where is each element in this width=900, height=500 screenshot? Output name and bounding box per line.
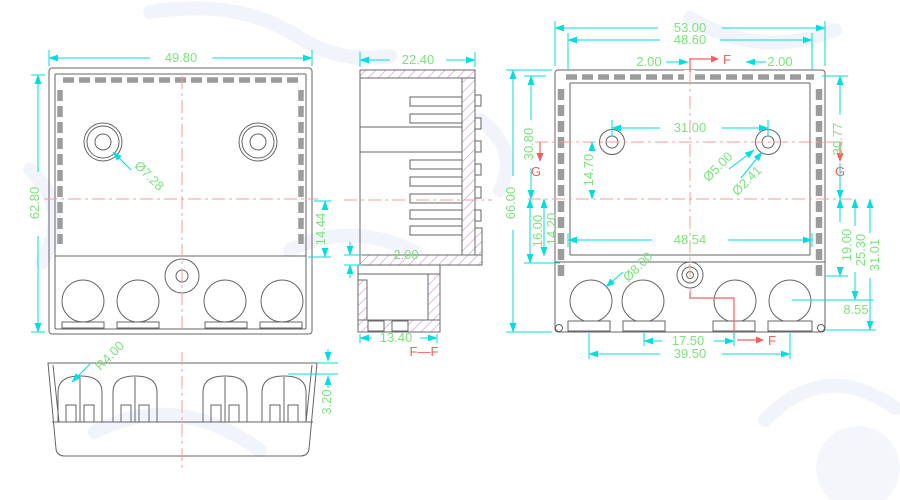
dim-back-d25: 25.30 <box>853 234 868 267</box>
section-view: 22.40 2.00 13.40 F—F <box>344 52 492 359</box>
dim-section-wall: 2.00 <box>393 247 418 262</box>
section-label: F—F <box>410 344 439 359</box>
dim-bottom-lip: 3.20 <box>319 389 334 414</box>
dim-back-height-left: 30.80 <box>521 128 536 161</box>
bottom-view-dimensions: R4.00 3.20 <box>72 338 338 415</box>
dim-back-cavity-16: 16.00 <box>530 215 545 248</box>
section-marker-g: G G <box>531 142 845 179</box>
section-marker-f-bottom-label: F <box>768 333 776 348</box>
dim-back-edge-left: 2.00 <box>636 54 661 69</box>
section-marker-g-left-label: G <box>531 164 541 179</box>
dim-bottom-radius: R4.00 <box>92 338 127 373</box>
section-marker-f-top-label: F <box>723 52 731 67</box>
dim-front-height: 62.80 <box>27 187 42 220</box>
dim-back-d31: 31.01 <box>867 239 882 272</box>
dim-back-d19: 19.00 <box>839 229 854 262</box>
dim-front-band-height: 14.44 <box>313 213 328 246</box>
cad-drawing-svg: 49.80 62.80 Ø7.28 14.44 <box>0 0 900 500</box>
dim-back-hole-spacing: 31.00 <box>674 120 707 135</box>
dim-back-hole-offset: 14.70 <box>581 154 596 187</box>
dim-front-width: 49.80 <box>165 50 198 65</box>
section-marker-f: F F <box>690 52 776 348</box>
front-view-linework <box>49 68 312 334</box>
dim-back-boss-dia: Ø5.00 <box>700 149 736 185</box>
front-view: 49.80 62.80 Ø7.28 14.44 <box>27 50 331 334</box>
dim-back-inner-width-bottom: 48.54 <box>674 232 707 247</box>
dim-back-hole-dia: Ø2.41 <box>729 163 765 199</box>
dim-back-edge-right: 2.00 <box>767 54 792 69</box>
dim-back-height-right: 30.77 <box>830 123 845 156</box>
bottom-view: R4.00 3.20 <box>48 338 338 468</box>
dim-back-slot-edge: 8.55 <box>843 302 868 317</box>
back-view-centerlines <box>528 72 852 292</box>
front-view-dimensions: 49.80 62.80 Ø7.28 14.44 <box>27 50 331 332</box>
dim-back-cavity-14: 14.20 <box>544 213 559 246</box>
dim-back-inner-width: 48.60 <box>674 32 707 47</box>
drawing-canvas: 49.80 62.80 Ø7.28 14.44 <box>0 0 900 500</box>
section-view-linework <box>358 70 482 332</box>
dim-back-knockout-dia: Ø8.00 <box>620 249 656 285</box>
dim-back-slot-span: 39.50 <box>674 346 707 361</box>
back-view: G G F F <box>503 20 882 361</box>
dim-back-overall-height: 66.00 <box>503 187 518 220</box>
dim-front-hole-dia: Ø7.28 <box>132 158 168 194</box>
dim-section-base: 13.40 <box>380 330 413 345</box>
dim-section-depth: 22.40 <box>402 52 435 67</box>
